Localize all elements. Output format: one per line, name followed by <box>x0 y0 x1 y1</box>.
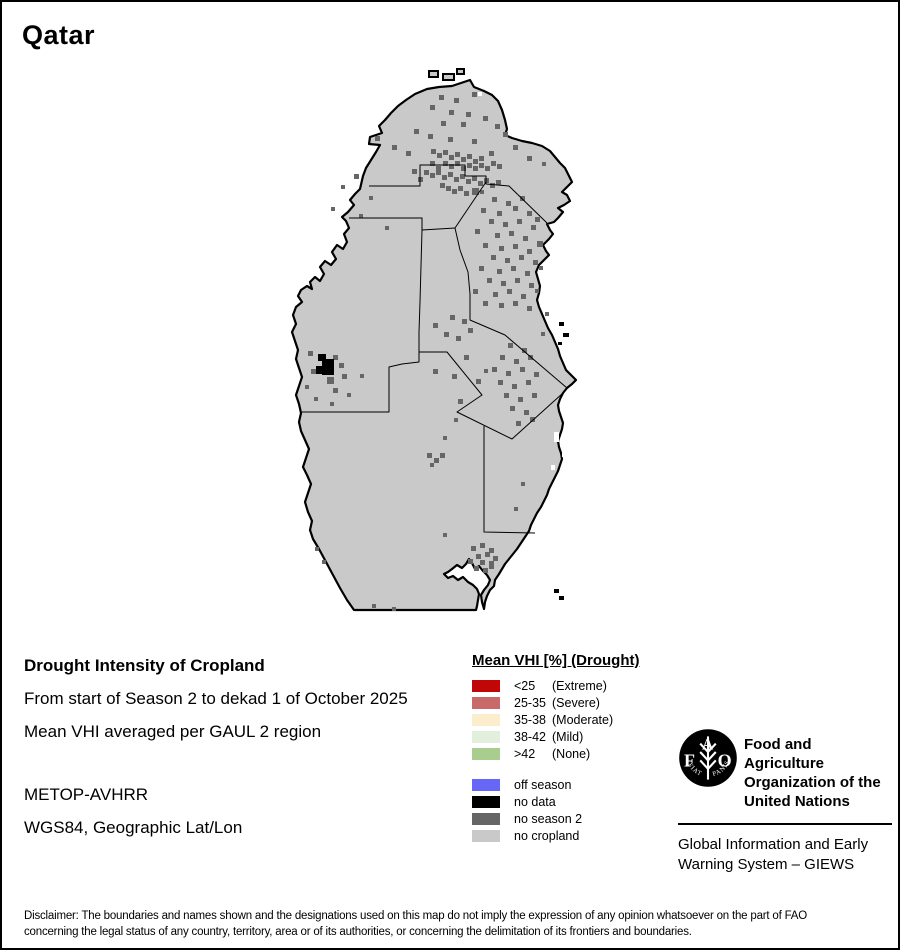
no-season2-cell <box>535 217 540 222</box>
map-info-block: Drought Intensity of Cropland From start… <box>24 656 464 851</box>
no-season2-cell <box>473 159 478 164</box>
no-season2-cell <box>545 312 549 316</box>
no-season2-cell <box>443 150 448 155</box>
no-season2-cell <box>524 410 529 415</box>
legend-swatch <box>472 731 500 743</box>
no-season2-cell <box>483 301 488 306</box>
no-season2-cell <box>461 122 466 127</box>
water-gap-cell <box>478 92 482 96</box>
water-gap-cell <box>572 457 576 465</box>
no-season2-cell <box>440 453 445 458</box>
no-season2-cell <box>412 169 417 174</box>
no-season2-cell <box>428 134 433 139</box>
no-season2-cell <box>499 246 504 251</box>
legend-swatch <box>472 680 500 692</box>
no-season2-cell <box>527 156 532 161</box>
no-data-cell <box>322 359 334 375</box>
no-season2-cell <box>542 162 546 166</box>
no-season2-cell <box>489 151 494 156</box>
no-season2-cell <box>505 258 510 263</box>
legend-swatch <box>472 796 500 808</box>
legend-swatch <box>472 830 500 842</box>
no-season2-cell <box>359 214 363 218</box>
no-season2-cell <box>513 244 518 249</box>
no-season2-cell <box>472 139 477 144</box>
no-season2-cell <box>454 418 458 422</box>
no-season2-cell <box>487 278 492 283</box>
disclaimer-line1: Disclaimer: The boundaries and names sho… <box>24 908 880 924</box>
legend-item-qualifier: (Moderate) <box>552 713 613 727</box>
islet <box>559 322 564 326</box>
map-projection-line: WGS84, Geographic Lat/Lon <box>24 818 464 838</box>
no-season2-cell <box>476 554 481 559</box>
map-sheet: Qatar Drought Intensity of Cropland From… <box>0 0 900 950</box>
no-season2-cell <box>454 98 459 103</box>
fao-org-name-line3: United Nations <box>744 792 892 811</box>
no-season2-cell <box>473 289 478 294</box>
no-season2-cell <box>443 436 447 440</box>
giews-name: Global Information and Early Warning Sys… <box>678 835 892 875</box>
no-season2-cell <box>385 226 389 230</box>
no-season2-cell <box>532 393 537 398</box>
no-season2-cell <box>520 367 525 372</box>
no-season2-cell <box>480 560 485 565</box>
no-season2-cell <box>360 374 364 378</box>
no-season2-cell <box>462 319 467 324</box>
no-season2-cell <box>491 161 496 166</box>
no-season2-cell <box>514 507 518 511</box>
legend-drought-items: <25(Extreme)25-35(Severe)35-38(Moderate)… <box>472 677 682 762</box>
no-season2-cell <box>479 266 484 271</box>
legend-item-value: 35-38 <box>514 713 552 727</box>
disclaimer: Disclaimer: The boundaries and names sho… <box>24 908 880 940</box>
no-season2-cell <box>489 219 494 224</box>
no-season2-cell <box>484 369 488 373</box>
no-season2-cell <box>499 303 504 308</box>
no-season2-cell <box>503 222 508 227</box>
legend-item: <25(Extreme) <box>472 677 682 694</box>
no-season2-cell <box>493 556 498 561</box>
legend-item: no cropland <box>472 827 682 844</box>
no-season2-cell <box>305 385 309 389</box>
legend-status-items: off seasonno datano season 2no cropland <box>472 776 682 844</box>
no-season2-cell <box>456 336 461 341</box>
no-season2-cell <box>466 112 471 117</box>
no-season2-cell <box>504 393 509 398</box>
legend-item: 35-38(Moderate) <box>472 711 682 728</box>
water-gap-cell <box>551 465 555 470</box>
no-season2-cell <box>458 399 463 404</box>
no-season2-cell <box>489 564 494 569</box>
no-season2-cell <box>339 363 344 368</box>
legend-swatch <box>472 697 500 709</box>
legend-swatch <box>472 714 500 726</box>
no-season2-cell <box>440 183 445 188</box>
legend-swatch <box>472 748 500 760</box>
no-season2-cell <box>497 211 502 216</box>
no-season2-cell <box>433 323 438 328</box>
no-season2-cell <box>430 173 435 178</box>
no-season2-cell <box>331 207 335 211</box>
fao-logo-icon: F A O FIAT PANIS <box>678 727 738 789</box>
legend-swatch <box>472 813 500 825</box>
no-season2-cell <box>372 604 376 608</box>
no-season2-cell <box>500 355 505 360</box>
no-season2-cell <box>534 372 539 377</box>
no-season2-cell <box>525 271 530 276</box>
no-season2-cell <box>354 174 359 179</box>
no-season2-cell <box>471 546 476 551</box>
no-season2-cell <box>481 208 486 213</box>
no-season2-cell <box>527 211 532 216</box>
map-period-line: From start of Season 2 to dekad 1 of Oct… <box>24 689 464 709</box>
no-season2-cell <box>519 255 524 260</box>
no-season2-cell <box>448 137 453 142</box>
legend-item: >42(None) <box>472 745 682 762</box>
no-season2-cell <box>527 306 532 311</box>
island <box>429 71 438 77</box>
no-season2-cell <box>452 374 457 379</box>
no-season2-cell <box>436 170 441 175</box>
no-season2-cell <box>480 543 485 548</box>
legend-item-label: no data <box>514 795 556 809</box>
map-aggregation-line: Mean VHI averaged per GAUL 2 region <box>24 722 464 742</box>
no-season2-cell <box>507 289 512 294</box>
no-season2-cell <box>473 166 478 171</box>
no-season2-cell <box>315 547 319 551</box>
disclaimer-line2: concerning the legal status of any count… <box>24 924 880 940</box>
no-season2-cell <box>513 206 518 211</box>
no-season2-cell <box>521 294 526 299</box>
no-season2-cell <box>496 180 501 185</box>
no-season2-cell <box>537 241 543 247</box>
no-season2-cell <box>509 231 514 236</box>
water-gap-cell <box>554 432 559 442</box>
no-season2-cell <box>479 163 484 168</box>
no-season2-cell <box>490 183 495 188</box>
no-season2-cell <box>467 154 472 159</box>
no-season2-cell <box>483 116 488 121</box>
no-season2-cell <box>531 225 536 230</box>
no-season2-cell <box>483 243 488 248</box>
fao-brand-row: F A O FIAT PANIS Food and Agriculture <box>678 727 892 811</box>
no-season2-cell <box>511 266 516 271</box>
no-season2-cell <box>311 369 316 374</box>
water-gap-cell <box>502 98 506 102</box>
no-season2-cell <box>492 197 497 202</box>
fao-org-name: Food and Agriculture Organization of the… <box>744 727 892 811</box>
no-season2-cell <box>478 181 483 186</box>
no-season2-cell <box>330 402 334 406</box>
legend-item-qualifier: (None) <box>552 747 590 761</box>
water-gap-cell <box>562 449 567 457</box>
no-season2-cell <box>464 191 469 196</box>
no-season2-cell <box>414 129 419 134</box>
no-season2-cell <box>434 458 439 463</box>
fao-branding: F A O FIAT PANIS Food and Agriculture <box>678 727 892 875</box>
no-season2-cell <box>424 170 429 175</box>
no-season2-cell <box>448 172 453 177</box>
island <box>443 74 454 80</box>
no-season2-cell <box>535 289 539 293</box>
legend-item: no season 2 <box>472 810 682 827</box>
no-season2-cell <box>392 607 396 611</box>
map-sensor-line: METOP-AVHRR <box>24 785 464 805</box>
no-season2-cell <box>498 380 503 385</box>
no-season2-cell <box>458 186 463 191</box>
no-season2-cell <box>468 328 473 333</box>
islet <box>559 596 564 600</box>
no-season2-cell <box>495 233 500 238</box>
no-season2-cell <box>441 121 446 126</box>
no-season2-cell <box>527 249 532 254</box>
no-season2-cell <box>541 332 545 336</box>
no-season2-cell <box>342 374 347 379</box>
no-season2-cell <box>443 533 447 537</box>
no-season2-cell <box>533 260 538 265</box>
no-season2-cell <box>512 384 517 389</box>
no-season2-cell <box>475 229 480 234</box>
no-season2-cell <box>431 149 436 154</box>
legend: Mean VHI [%] (Drought) <25(Extreme)25-35… <box>472 652 682 844</box>
no-season2-cell <box>523 236 528 241</box>
no-season2-cell <box>392 145 397 150</box>
no-season2-cell <box>467 163 472 168</box>
legend-item-label: off season <box>514 778 571 792</box>
legend-item-qualifier: (Mild) <box>552 730 583 744</box>
no-season2-cell <box>439 95 444 100</box>
no-season2-cell <box>517 219 522 224</box>
no-season2-cell <box>347 393 351 397</box>
legend-item-value: 25-35 <box>514 696 552 710</box>
fao-org-name-line2: Organization of the <box>744 773 892 792</box>
no-season2-cell <box>314 397 318 401</box>
no-season2-cell <box>449 110 454 115</box>
spacer <box>24 755 464 785</box>
islet <box>554 589 559 593</box>
no-season2-cell <box>460 174 465 179</box>
no-season2-cell <box>539 266 543 270</box>
water-gap-cell <box>568 422 572 428</box>
legend-item-label: no cropland <box>514 829 579 843</box>
no-season2-cell <box>518 397 523 402</box>
no-season2-cell <box>452 189 457 194</box>
no-season2-cell <box>406 151 411 156</box>
no-season2-cell <box>464 355 469 360</box>
legend-item-qualifier: (Severe) <box>552 696 600 710</box>
no-season2-cell <box>472 176 477 181</box>
islet <box>563 333 569 337</box>
legend-title: Mean VHI [%] (Drought) <box>472 652 682 669</box>
no-season2-cell <box>506 201 511 206</box>
qatar-landmass <box>292 80 576 610</box>
no-season2-cell <box>446 186 451 191</box>
no-season2-cell <box>450 315 455 320</box>
no-season2-cell <box>485 552 490 557</box>
islet <box>558 342 562 345</box>
no-season2-cell <box>513 145 518 150</box>
no-season2-cell <box>333 388 338 393</box>
legend-item-qualifier: (Extreme) <box>552 679 607 693</box>
legend-item: off season <box>472 776 682 793</box>
no-season2-cell <box>514 359 519 364</box>
country-outline <box>292 80 576 610</box>
no-season2-cell <box>515 278 520 283</box>
branding-divider <box>678 823 892 825</box>
no-season2-cell <box>506 371 511 376</box>
no-season2-cell <box>485 166 490 171</box>
legend-item-value: >42 <box>514 747 552 761</box>
no-season2-cell <box>483 568 488 573</box>
no-season2-cell <box>529 283 534 288</box>
no-season2-cell <box>491 255 496 260</box>
no-season2-cell <box>442 175 447 180</box>
no-season2-cell <box>472 92 477 97</box>
no-season2-cell <box>468 559 473 564</box>
no-season2-cell <box>510 406 515 411</box>
no-season2-cell <box>501 281 506 286</box>
no-season2-cell <box>493 292 498 297</box>
no-season2-cell <box>322 560 326 564</box>
no-season2-cell <box>375 136 380 141</box>
no-season2-cell <box>503 132 508 137</box>
no-season2-cell <box>369 196 373 200</box>
no-season2-cell <box>454 177 459 182</box>
no-season2-cell <box>521 482 525 486</box>
no-season2-cell <box>495 124 500 129</box>
no-season2-cell <box>513 301 518 306</box>
no-season2-cell <box>341 185 345 189</box>
no-season2-cell <box>526 380 531 385</box>
legend-swatch <box>472 779 500 791</box>
giews-line1: Global Information and Early <box>678 835 892 855</box>
no-season2-cell <box>466 179 471 184</box>
legend-item: 38-42(Mild) <box>472 728 682 745</box>
legend-item-value: <25 <box>514 679 552 693</box>
no-season2-cell <box>479 156 484 161</box>
no-season2-cell <box>449 155 454 160</box>
legend-item-value: 38-42 <box>514 730 552 744</box>
legend-item: no data <box>472 793 682 810</box>
legend-item-label: no season 2 <box>514 812 582 826</box>
legend-item: 25-35(Severe) <box>472 694 682 711</box>
no-season2-cell <box>430 105 435 110</box>
no-season2-cell <box>430 463 434 467</box>
no-season2-cell <box>474 566 479 571</box>
no-season2-cell <box>427 453 432 458</box>
giews-line2: Warning System – GIEWS <box>678 855 892 875</box>
no-season2-cell <box>476 379 481 384</box>
no-season2-cell <box>433 369 438 374</box>
no-season2-cell <box>516 421 521 426</box>
no-season2-cell <box>437 153 442 158</box>
no-season2-cell <box>508 343 513 348</box>
no-season2-cell <box>444 332 449 337</box>
no-season2-cell <box>308 351 313 356</box>
no-season2-cell <box>455 152 460 157</box>
no-season2-cell <box>327 377 334 384</box>
no-season2-cell <box>497 269 502 274</box>
no-season2-cell <box>497 164 502 169</box>
map-subject-heading: Drought Intensity of Cropland <box>24 656 464 676</box>
island <box>457 69 464 74</box>
no-data-cell <box>316 366 322 374</box>
fao-org-name-line1: Food and Agriculture <box>744 735 892 773</box>
no-season2-cell <box>492 367 497 372</box>
no-season2-cell <box>461 157 466 162</box>
